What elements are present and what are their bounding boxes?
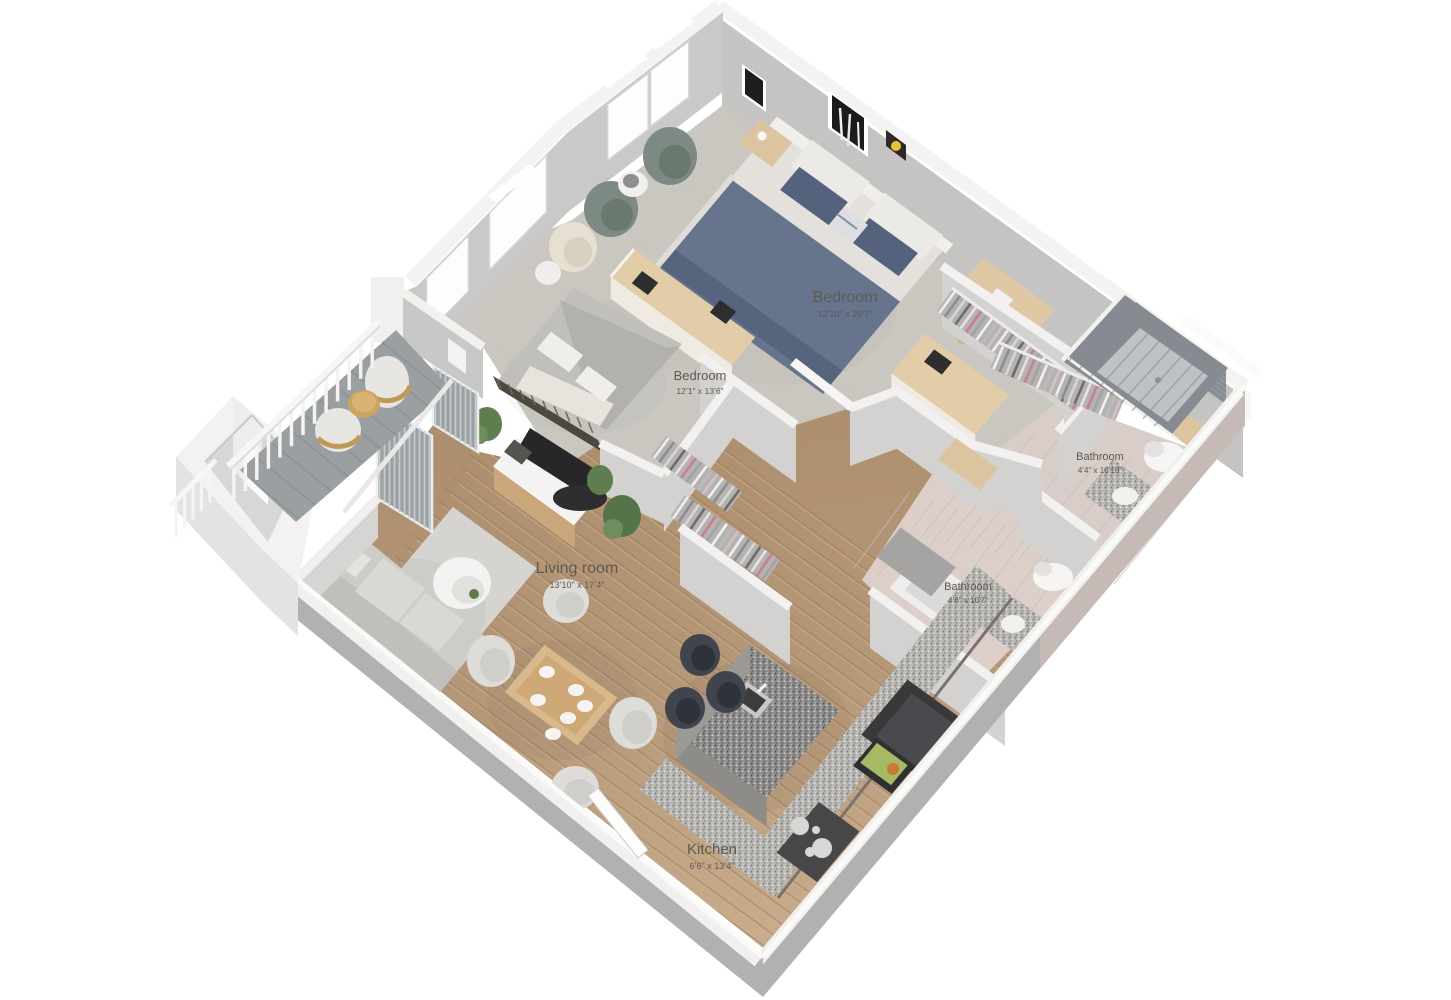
svg-text:Bedroom: Bedroom bbox=[674, 368, 727, 383]
svg-text:12’10" x 20’7": 12’10" x 20’7" bbox=[818, 309, 873, 319]
svg-text:6’6" x 13’4": 6’6" x 13’4" bbox=[690, 861, 735, 871]
svg-text:Kitchen: Kitchen bbox=[687, 841, 737, 858]
svg-text:Bathroom: Bathroom bbox=[1076, 451, 1124, 463]
svg-text:Living room: Living room bbox=[536, 560, 619, 577]
svg-text:Bedroom: Bedroom bbox=[813, 289, 878, 306]
svg-text:13’10" x 17’4": 13’10" x 17’4" bbox=[550, 580, 605, 590]
svg-text:4’4" x 10’10": 4’4" x 10’10" bbox=[1078, 466, 1123, 475]
svg-text:4’6" x 10’7": 4’6" x 10’7" bbox=[948, 596, 988, 605]
svg-text:12’1" x 13’6": 12’1" x 13’6" bbox=[676, 386, 723, 396]
svg-text:Bathroom: Bathroom bbox=[944, 581, 992, 593]
